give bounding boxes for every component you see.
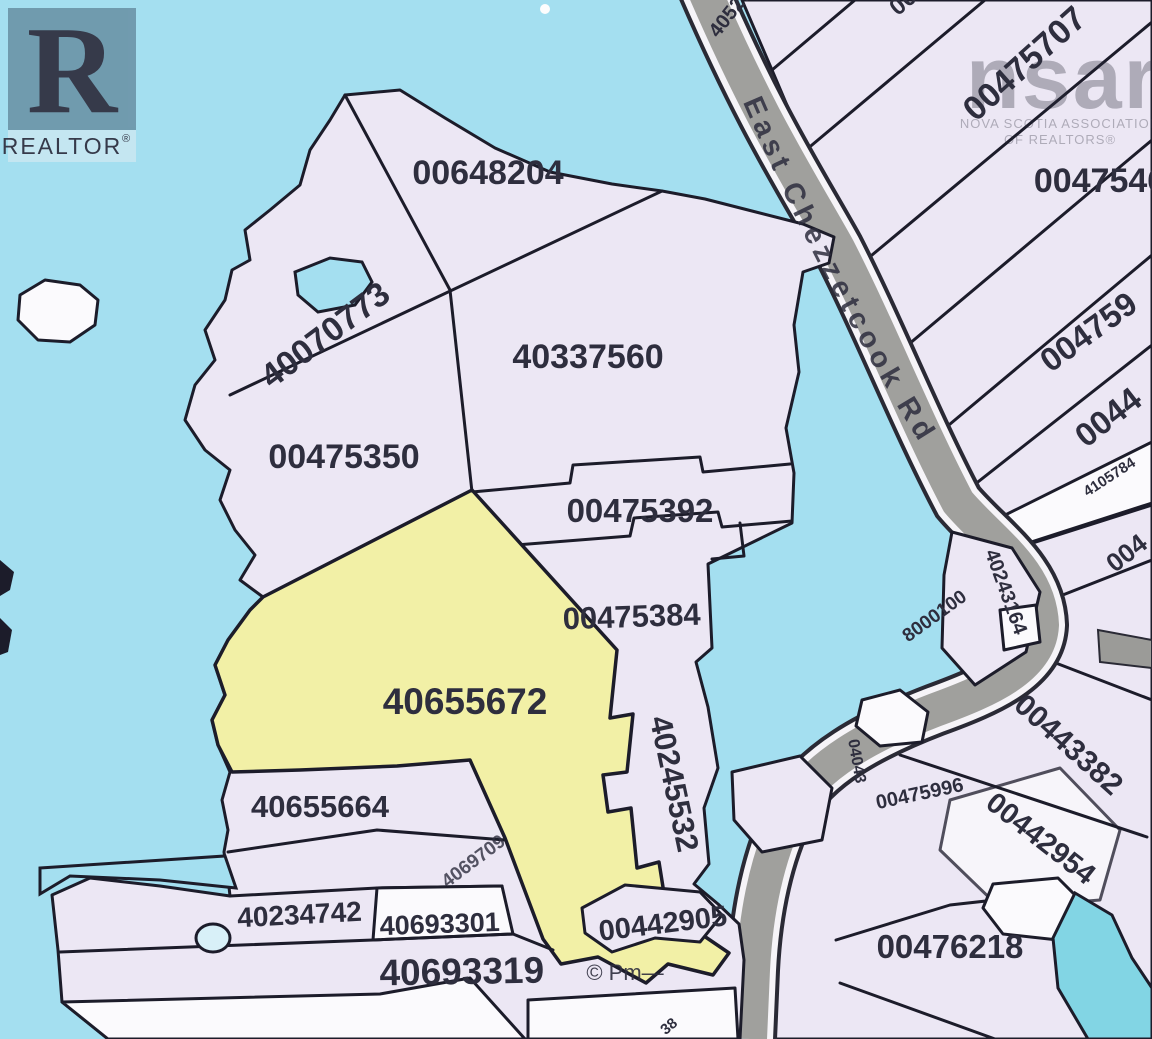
- parcel-label-00475350: 00475350: [268, 438, 419, 476]
- parcel-label-00475392: 00475392: [567, 492, 714, 529]
- nsar-watermark-line2: OF REALTORS®: [1004, 132, 1116, 147]
- parcel-label-00475384: 00475384: [562, 597, 702, 637]
- realtor-logo-r: R: [27, 2, 119, 140]
- realtor-logo-reg: ®: [122, 133, 130, 145]
- parcel-label-40693301: 40693301: [379, 907, 500, 941]
- parcel-label-00476218: 00476218: [877, 928, 1024, 965]
- parcel-label-0047546: 0047546: [1034, 162, 1152, 200]
- realtor-logo-text: REALTOR: [2, 133, 123, 159]
- island-top-left: [18, 280, 98, 342]
- copyright-watermark: © Pm—: [586, 960, 663, 985]
- pond-in-spit: [196, 924, 230, 952]
- parcel-label-40655672: 40655672: [383, 681, 548, 722]
- parcel-label-40234742: 40234742: [236, 896, 362, 933]
- parcel-label-40693319: 40693319: [379, 950, 544, 994]
- parcel-label-40655664: 40655664: [251, 789, 390, 824]
- parcel-map: nsar NOVA SCOTIA ASSOCIATION OF REALTORS…: [0, 0, 1152, 1039]
- parcel-label-40337560: 40337560: [512, 338, 663, 376]
- parcel-label-00648204: 00648204: [412, 154, 563, 192]
- realtor-logo: R REALTOR ®: [2, 2, 136, 162]
- water-speck: [540, 4, 550, 14]
